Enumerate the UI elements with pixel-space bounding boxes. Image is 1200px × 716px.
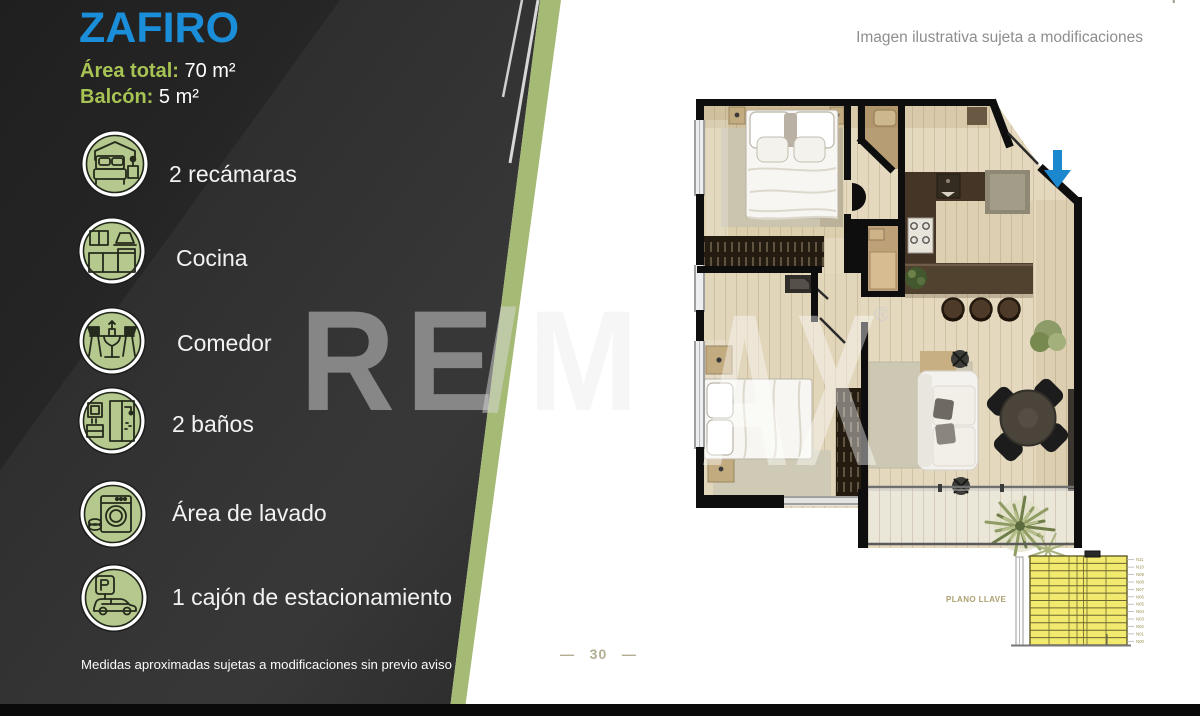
svg-text:N10: N10 xyxy=(1136,565,1144,570)
svg-text:N03: N03 xyxy=(1136,617,1144,622)
svg-text:N11: N11 xyxy=(1136,557,1144,562)
svg-text:N05: N05 xyxy=(1136,602,1144,607)
svg-text:N08: N08 xyxy=(1136,579,1144,584)
svg-text:N02: N02 xyxy=(1136,624,1144,629)
svg-text:N07: N07 xyxy=(1136,587,1144,592)
svg-text:N04: N04 xyxy=(1136,609,1144,614)
svg-text:N09: N09 xyxy=(1136,572,1144,577)
svg-text:N01: N01 xyxy=(1136,631,1144,636)
svg-text:N06: N06 xyxy=(1136,594,1144,599)
svg-text:N00: N00 xyxy=(1136,639,1144,644)
